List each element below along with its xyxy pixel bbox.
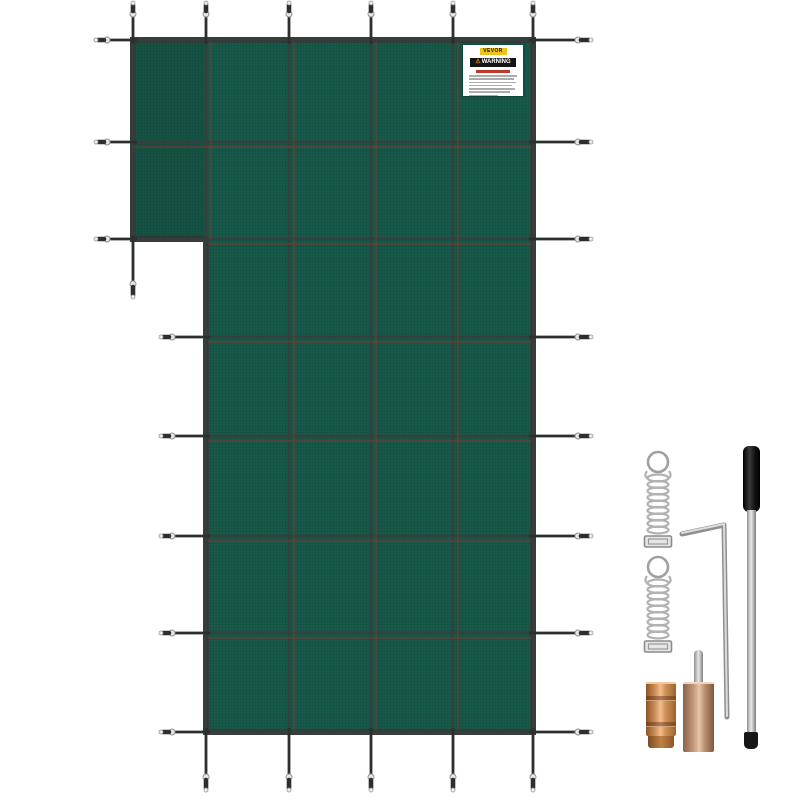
warning-banner: ⚠ WARNING	[470, 58, 516, 67]
install-rod-tip	[744, 732, 758, 749]
anchor-stem	[694, 650, 703, 683]
cover-notch-panel	[136, 43, 204, 237]
rose-metal-anchor	[683, 682, 714, 752]
tension-spring-2	[645, 557, 672, 652]
install-rod-handle	[743, 446, 760, 512]
copper-anchor-body	[646, 682, 676, 736]
tension-spring-1	[645, 452, 672, 547]
warning-label: VEVOR ⚠ WARNING	[463, 45, 523, 96]
install-rod-shaft	[747, 510, 756, 734]
pool-safety-cover	[0, 0, 800, 800]
copper-anchor-collar	[648, 736, 674, 748]
product-photo: VEVOR ⚠ WARNING	[0, 0, 800, 800]
label-red-heading	[476, 70, 510, 73]
copper-anchor	[646, 682, 676, 748]
warning-triangle-icon: ⚠	[475, 58, 480, 67]
warning-banner-text: WARNING	[482, 58, 511, 67]
brand-logo: VEVOR	[480, 48, 507, 55]
label-fine-print	[463, 75, 523, 96]
